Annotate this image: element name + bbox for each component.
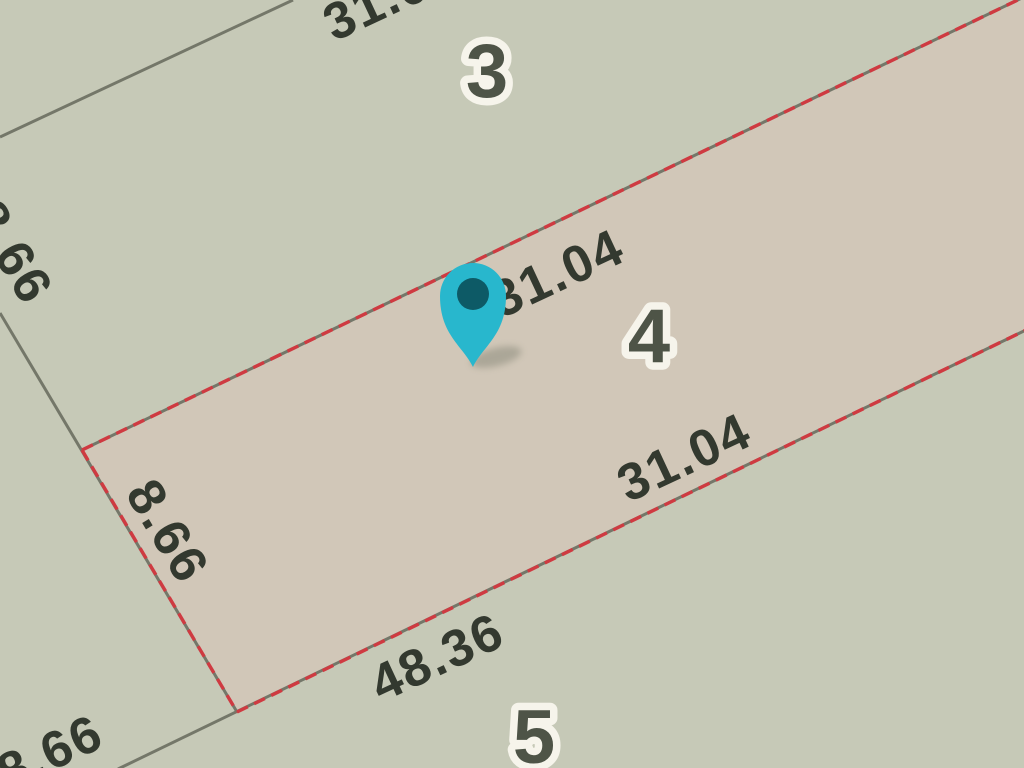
cadastral-map: 31.04 31.04 31.04 48.36 8.66 8.66 8.66 3… bbox=[0, 0, 1024, 768]
parcel-number-4: 4 bbox=[628, 294, 670, 379]
parcel-number-5: 5 bbox=[513, 695, 555, 768]
parcel-number-3: 3 bbox=[466, 29, 508, 114]
map-viewport[interactable]: 31.04 31.04 31.04 48.36 8.66 8.66 8.66 3… bbox=[0, 0, 1024, 768]
location-pin-center-dot bbox=[457, 278, 489, 310]
